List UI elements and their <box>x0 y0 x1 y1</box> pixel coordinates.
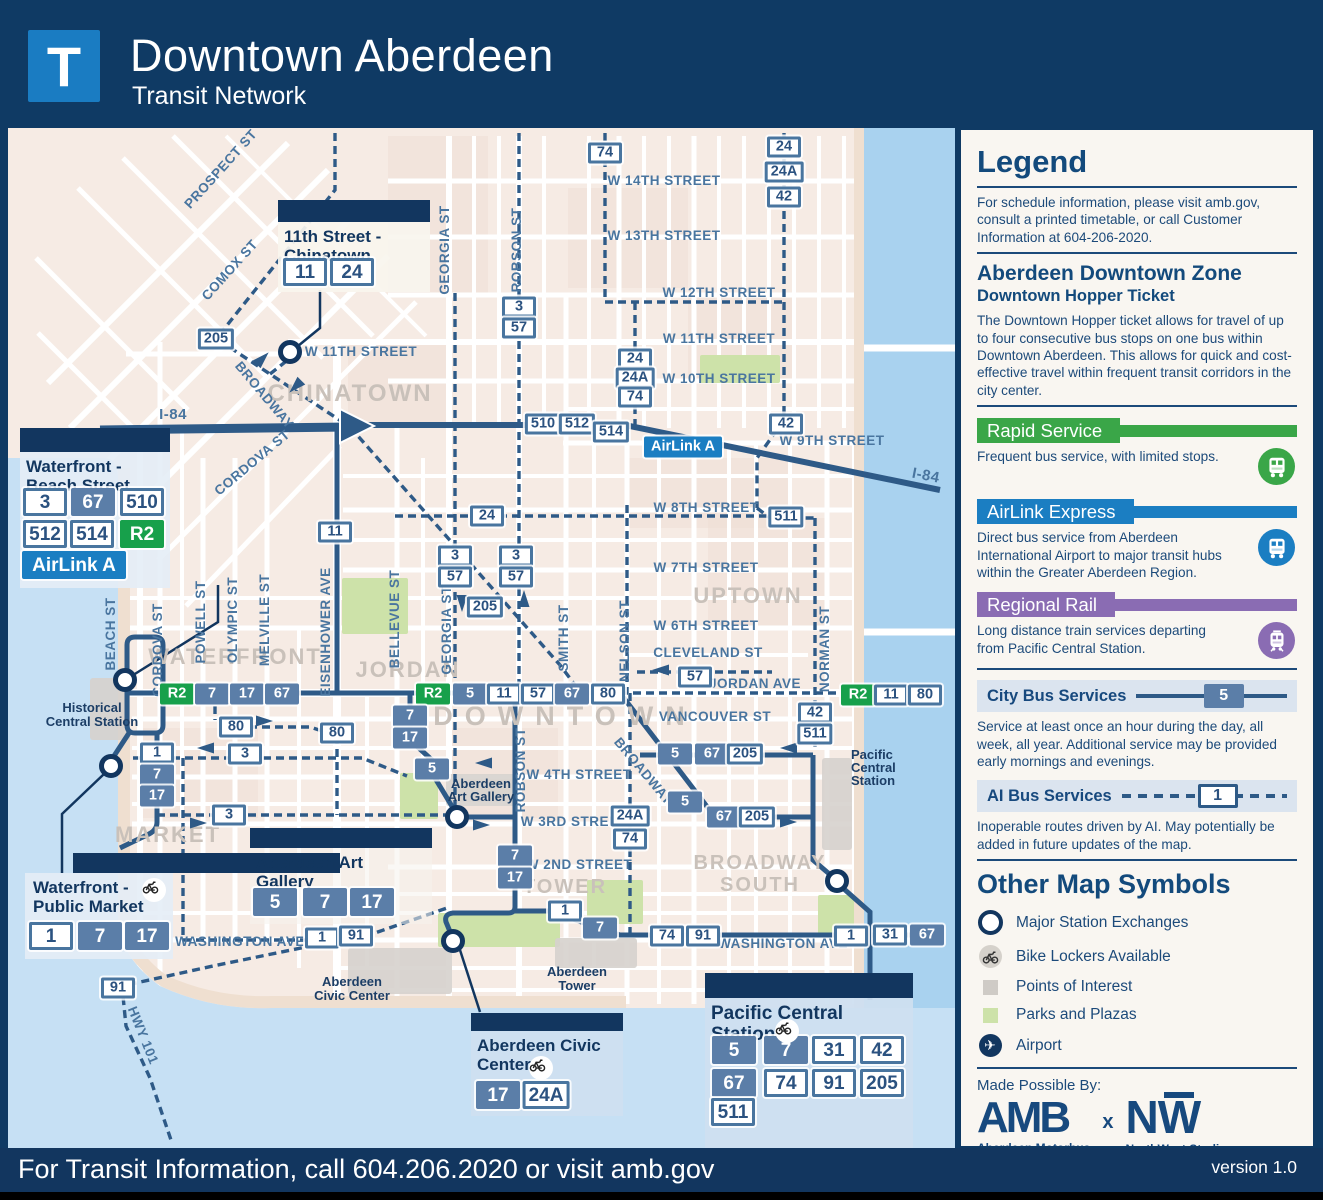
route-badge: 67 <box>712 1069 756 1097</box>
route-badge: 67 <box>555 684 589 705</box>
route-badge: 57 <box>521 684 555 705</box>
route-badge: 5 <box>453 684 487 705</box>
route-badge: 24A <box>616 368 655 389</box>
route-badge: 1 <box>834 926 868 947</box>
route-badge: 3 <box>499 546 533 567</box>
symbols-title: Other Map Symbols <box>977 869 1297 900</box>
airlink-express-desc: Direct bus service from Aberdeen Interna… <box>977 529 1225 581</box>
bottom-bar <box>0 1192 1323 1200</box>
route-badge: 91 <box>339 926 373 947</box>
page-title: Downtown Aberdeen <box>130 30 554 82</box>
route-badge: 511 <box>768 507 803 528</box>
callout-bar <box>278 200 430 222</box>
banner-extension <box>1134 506 1297 518</box>
ai-bus-row: AI Bus Services 1 <box>977 780 1297 812</box>
bike-locker-icon <box>979 945 1002 968</box>
city-bus-row: City Bus Services 5 <box>977 680 1297 712</box>
route-badge: 67 <box>707 807 741 828</box>
bus-icon <box>1258 529 1295 566</box>
callout-title: Waterfront -Public Market <box>33 879 144 916</box>
route-badge: 7 <box>393 706 427 727</box>
route-badge: 1 <box>548 901 582 922</box>
route-badge: R2 <box>160 684 194 705</box>
route-badge: 17 <box>498 868 532 889</box>
route-badge: 17 <box>393 728 427 749</box>
divider <box>977 186 1297 188</box>
callout-bar <box>20 428 170 452</box>
route-badge: 24 <box>618 349 652 370</box>
service-rail: Regional Rail Long distance train servic… <box>977 592 1297 662</box>
route-badge: 57 <box>502 318 536 339</box>
route-badge: 91 <box>686 926 720 947</box>
route-badge: 5 <box>712 1036 756 1064</box>
divider <box>977 252 1297 254</box>
transit-map: CHINATOWNWATERFRONTJORDANDOWNTOWNUPTOWNM… <box>8 128 955 1148</box>
route-badge: 1 <box>1198 784 1238 808</box>
route-badge: 514 <box>593 422 629 443</box>
route-badge: 3 <box>23 488 67 516</box>
airlink-express-banner: AirLink Express <box>977 499 1134 524</box>
route-badge: 17 <box>125 922 169 950</box>
route-badge: 7 <box>498 846 532 867</box>
callout-bar <box>705 973 913 998</box>
route-badge: 17 <box>350 888 394 916</box>
route-badge: 91 <box>812 1069 856 1097</box>
route-badge: 11 <box>318 522 352 543</box>
route-badge: 3 <box>212 805 246 826</box>
route-badge: 24 <box>330 258 374 286</box>
route-badge: 74 <box>588 143 622 164</box>
route-badge: 5 <box>415 759 449 780</box>
route-badge: R2 <box>120 520 164 548</box>
route-badge: 24A <box>523 1081 570 1109</box>
route-badge: 42 <box>860 1036 904 1064</box>
callout-title: Aberdeen ArtGallery <box>256 854 363 891</box>
city-bus-line: 5 <box>1136 694 1287 698</box>
zone-subtitle: Downtown Hopper Ticket <box>977 287 1297 306</box>
symbol-bike: Bike Lockers Available <box>977 945 1297 968</box>
city-bus-desc: Service at least once an hour during the… <box>977 718 1297 770</box>
zone-body: The Downtown Hopper ticket allows for tr… <box>977 312 1297 399</box>
route-badge: 17 <box>140 786 174 807</box>
header: T Downtown Aberdeen Transit Network <box>0 0 1323 128</box>
train-icon <box>1258 622 1295 659</box>
route-badge: 7 <box>78 922 122 950</box>
bus-icon <box>1258 448 1295 485</box>
route-badge: 67 <box>695 744 729 765</box>
route-badge: 91 <box>101 978 135 999</box>
route-badge: 3 <box>502 297 536 318</box>
route-badge: 74 <box>764 1069 808 1097</box>
route-badge: 205 <box>860 1069 904 1097</box>
poi-icon <box>983 980 998 995</box>
route-badge: AirLink A <box>22 551 126 579</box>
divider <box>977 1067 1297 1069</box>
symbol-label: Points of Interest <box>1016 978 1132 996</box>
divider <box>977 405 1297 407</box>
route-badge: 11 <box>874 685 908 706</box>
route-badge: 80 <box>908 685 942 706</box>
route-badge: 57 <box>678 667 712 688</box>
route-badge: 31 <box>873 925 907 946</box>
park-icon <box>983 1008 998 1023</box>
symbol-station: Major Station Exchanges <box>977 910 1297 935</box>
route-badge: 31 <box>812 1036 856 1064</box>
banner-extension <box>1115 599 1297 611</box>
divider <box>977 668 1297 670</box>
route-badge: 7 <box>583 918 617 939</box>
legend-intro: For schedule information, please visit a… <box>977 194 1297 246</box>
bike-locker-icon <box>775 1019 799 1043</box>
route-badge: 74 <box>618 387 652 408</box>
route-badge: 205 <box>198 329 234 350</box>
credits-x: x <box>1102 1111 1113 1134</box>
service-airlink: AirLink Express Direct bus service from … <box>977 499 1297 581</box>
rapid-service-banner: Rapid Service <box>977 418 1120 443</box>
credits: AMB Aberdeen Motorbus x NW NorthWest Stu… <box>977 1096 1297 1146</box>
route-badge: 3 <box>438 546 472 567</box>
route-badge: 7 <box>140 765 174 786</box>
route-badge: 1 <box>29 922 73 950</box>
symbol-label: Major Station Exchanges <box>1016 914 1188 932</box>
route-badge: 205 <box>727 744 763 765</box>
route-badge: 511 <box>711 1098 755 1126</box>
route-badge: 80 <box>320 723 354 744</box>
route-badge: 5 <box>253 888 297 916</box>
ai-bus-label: AI Bus Services <box>987 787 1112 806</box>
route-badge: 510 <box>120 488 164 516</box>
symbol-label: Parks and Plazas <box>1016 1006 1137 1024</box>
route-badge: 24 <box>470 506 504 527</box>
route-badge: 17 <box>230 684 264 705</box>
symbol-poi: Points of Interest <box>977 978 1297 996</box>
page-subtitle: Transit Network <box>132 82 306 111</box>
route-badge: 205 <box>739 807 775 828</box>
route-badge: AirLink A <box>644 437 722 458</box>
amb-logo: AMB <box>977 1097 1068 1139</box>
route-badge: 42 <box>798 703 832 724</box>
route-badge: 5 <box>668 792 702 813</box>
route-badge: R2 <box>841 685 875 706</box>
service-rapid: Rapid Service Frequent bus service, with… <box>977 418 1297 488</box>
airport-icon: ✈ <box>979 1034 1002 1057</box>
route-badge: 57 <box>499 567 533 588</box>
zone-title: Aberdeen Downtown Zone <box>977 262 1297 286</box>
route-badge: 67 <box>71 488 115 516</box>
legend-panel: Legend For schedule information, please … <box>961 130 1313 1146</box>
route-badge: 512 <box>23 520 67 548</box>
route-badge: 514 <box>70 520 114 548</box>
amb-caption: Aberdeen Motorbus <box>977 1141 1090 1146</box>
map-overlay: 742424A422053572424A74510512514422411511… <box>8 128 955 1148</box>
route-badge: 24 <box>767 137 801 158</box>
route-badge: 7 <box>195 684 229 705</box>
ai-bus-line: 1 <box>1122 794 1287 798</box>
route-badge: 24A <box>765 162 804 183</box>
footer-text: For Transit Information, call 604.206.20… <box>18 1154 714 1185</box>
route-badge: 5 <box>1204 684 1244 708</box>
bike-locker-icon <box>529 1056 553 1080</box>
divider <box>977 859 1297 861</box>
route-badge: 3 <box>228 744 262 765</box>
legend-title: Legend <box>977 144 1297 180</box>
route-badge: 42 <box>767 187 801 208</box>
ai-bus-desc: Inoperable routes driven by AI. May pote… <box>977 818 1297 853</box>
route-badge: 42 <box>769 414 803 435</box>
route-badge: 24A <box>611 806 650 827</box>
station-exchange-icon <box>978 910 1003 935</box>
symbol-airport: ✈ Airport <box>977 1034 1297 1057</box>
symbol-label: Bike Lockers Available <box>1016 948 1171 966</box>
callout-bar <box>250 828 432 848</box>
regional-rail-banner: Regional Rail <box>977 592 1115 617</box>
nw-logo: NW <box>1125 1096 1200 1140</box>
route-badge: 1 <box>305 928 339 949</box>
bike-locker-icon <box>142 878 166 902</box>
city-bus-label: City Bus Services <box>987 687 1126 706</box>
route-badge: 511 <box>797 724 832 745</box>
route-badge: 74 <box>613 829 647 850</box>
route-badge: 17 <box>476 1081 520 1109</box>
route-badge: 512 <box>559 414 595 435</box>
banner-extension <box>1120 425 1297 437</box>
route-badge: 11 <box>487 684 521 705</box>
route-badge: 57 <box>438 567 472 588</box>
version-label: version 1.0 <box>1211 1157 1297 1178</box>
route-badge: 67 <box>265 684 299 705</box>
route-badge: 67 <box>910 925 944 946</box>
footer: For Transit Information, call 604.206.20… <box>0 1148 1323 1192</box>
route-badge: 5 <box>658 744 692 765</box>
route-badge: 80 <box>219 717 253 738</box>
route-badge: 74 <box>650 926 684 947</box>
transit-logo: T <box>28 30 100 102</box>
symbol-label: Airport <box>1016 1037 1062 1055</box>
callout-bar <box>471 1013 623 1031</box>
symbol-park: Parks and Plazas <box>977 1006 1297 1024</box>
route-badge: 510 <box>525 414 561 435</box>
rapid-service-desc: Frequent bus service, with limited stops… <box>977 448 1225 465</box>
regional-rail-desc: Long distance train services departing f… <box>977 622 1225 657</box>
route-badge: 1 <box>140 743 174 764</box>
route-badge: 205 <box>467 597 503 618</box>
route-badge: 80 <box>591 684 625 705</box>
route-badge: R2 <box>416 684 450 705</box>
route-badge: 11 <box>283 258 327 286</box>
route-badge: 7 <box>303 888 347 916</box>
